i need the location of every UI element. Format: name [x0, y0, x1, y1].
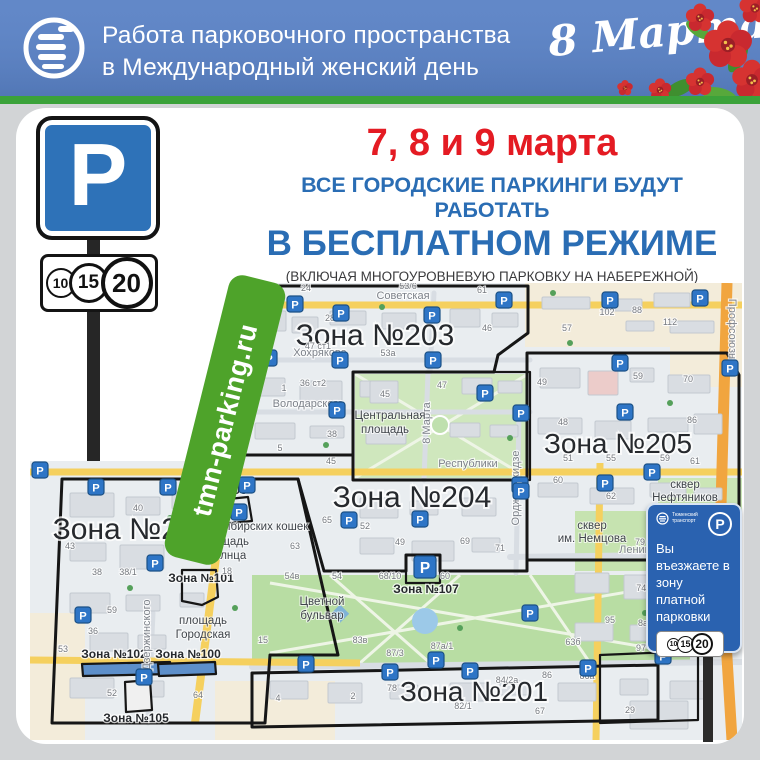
- entry-tariff-20: 20: [691, 633, 713, 655]
- parking-marker-icon: P: [88, 479, 104, 495]
- parking-marker-icon: P: [580, 660, 596, 676]
- house-number: 64: [193, 690, 203, 700]
- house-number: 15: [258, 635, 268, 645]
- entry-sign-pole: [703, 648, 713, 742]
- tree-icon: [567, 340, 573, 346]
- parking-marker-icon: P: [329, 402, 345, 418]
- house-number: 53/6: [399, 283, 417, 291]
- header-title-line2: в Международный женский день: [102, 52, 510, 84]
- tree-icon: [457, 625, 463, 631]
- place-label: Сибирских кошек: [216, 521, 309, 533]
- house-number: 5: [277, 443, 282, 453]
- building: [558, 683, 596, 701]
- parking-marker-icon: P: [231, 504, 247, 520]
- svg-text:P: P: [337, 308, 345, 320]
- announcement-dates: 7, 8 и 9 марта: [242, 122, 742, 165]
- svg-text:P: P: [517, 486, 525, 498]
- announcement-line1: ВСЕ ГОРОДСКИЕ ПАРКИНГИ БУДУТ РАБОТАТЬ: [242, 173, 742, 223]
- entry-sign-operator: Тюменский транспорт: [672, 512, 706, 524]
- place-label: им. Немцова: [558, 533, 627, 545]
- house-number: 24: [301, 283, 311, 293]
- house-number: 71: [495, 543, 505, 553]
- parking-marker-icon: P: [612, 355, 628, 371]
- house-number: 4: [275, 693, 280, 703]
- building: [255, 423, 295, 439]
- parking-marker-icon: P: [75, 607, 91, 623]
- transport-logo-icon: [20, 14, 88, 82]
- svg-text:P: P: [621, 407, 629, 419]
- house-number: 86: [542, 670, 552, 680]
- place-label: сквер: [670, 479, 700, 491]
- svg-text:P: P: [291, 299, 299, 311]
- announcement-line2: В БЕСПЛАТНОМ РЕЖИМЕ: [242, 224, 742, 264]
- house-number: 112: [663, 317, 677, 327]
- header: Работа парковочного пространства в Между…: [0, 0, 760, 96]
- house-number: 49: [395, 537, 405, 547]
- tree-icon: [323, 442, 329, 448]
- svg-text:P: P: [466, 666, 474, 678]
- parking-marker-icon: P: [412, 511, 428, 527]
- house-number: 54в: [285, 571, 300, 581]
- svg-text:P: P: [164, 482, 172, 494]
- house-number: 48: [558, 417, 568, 427]
- house-number: 88: [632, 305, 642, 315]
- building: [360, 538, 394, 554]
- house-number: 84/2а: [496, 675, 519, 685]
- header-title: Работа парковочного пространства в Между…: [102, 20, 510, 84]
- svg-text:P: P: [336, 355, 344, 367]
- street-label: Дзержинского: [141, 600, 153, 671]
- place-label: площадь: [179, 615, 227, 627]
- entry-sign-tariffs: 10 15 20: [656, 631, 724, 657]
- house-number: 53: [58, 644, 68, 654]
- house-number: 63б: [565, 637, 580, 647]
- street-label: Советская: [376, 290, 429, 302]
- district-area: [30, 613, 85, 740]
- parking-marker-icon: P: [722, 360, 738, 376]
- house-number: 53а: [380, 348, 395, 358]
- zone-label: Зона №107: [393, 582, 459, 596]
- house-number: 60: [440, 571, 450, 581]
- house-number: 59: [107, 605, 117, 615]
- house-number: 47: [437, 380, 447, 390]
- building: [538, 483, 578, 497]
- parking-sign: P: [36, 116, 160, 240]
- place-label: Центральная: [355, 410, 426, 422]
- place-label: бульвар: [300, 610, 343, 622]
- house-number: 55: [606, 453, 616, 463]
- svg-text:P: P: [92, 482, 100, 494]
- house-number: 45: [380, 389, 390, 399]
- house-number: 36: [88, 626, 98, 636]
- building: [620, 679, 648, 695]
- building: [542, 297, 590, 309]
- pond: [412, 608, 438, 634]
- square-fountain: [431, 416, 449, 434]
- tree-icon: [507, 435, 513, 441]
- house-number: 95: [605, 615, 615, 625]
- house-number: 43: [65, 541, 75, 551]
- house-number: 59: [633, 371, 643, 381]
- svg-text:P: P: [696, 293, 704, 305]
- paid-zone-entry-sign: Тюменский транспорт P Вы въезжаете в зон…: [646, 503, 742, 653]
- parking-marker-icon: P: [287, 296, 303, 312]
- house-number: 79: [635, 537, 645, 547]
- parking-marker-icon: P: [617, 404, 633, 420]
- house-number: 52: [107, 688, 117, 698]
- house-number: 2: [350, 691, 355, 701]
- zone-label: Зона №201: [400, 676, 548, 707]
- house-number: 29: [625, 705, 635, 715]
- parking-marker-icon: P: [136, 669, 152, 685]
- svg-text:P: P: [500, 295, 508, 307]
- building: [588, 371, 618, 395]
- house-number: 52: [360, 521, 370, 531]
- parking-marker-icon: P: [382, 664, 398, 680]
- svg-text:P: P: [584, 663, 592, 675]
- house-number: 54: [332, 571, 342, 581]
- house-number: 86: [687, 415, 697, 425]
- parking-marker-icon: P: [513, 405, 529, 421]
- tree-icon: [127, 585, 133, 591]
- building: [498, 381, 522, 393]
- parking-marker-icon: P: [522, 605, 538, 621]
- house-number: 59: [660, 453, 670, 463]
- tree-icon: [667, 400, 673, 406]
- parking-marker-icon: P: [414, 556, 436, 578]
- parking-marker-icon: P: [602, 292, 618, 308]
- building: [626, 321, 654, 331]
- house-number: 70: [683, 374, 693, 384]
- zone-label: Зона №100: [155, 647, 221, 661]
- parking-circle-icon: P: [708, 512, 732, 536]
- street-label: 8 Марта: [421, 401, 433, 443]
- map-canvas: Зона №203Зона №205Зона №204Зона №202Зона…: [30, 283, 742, 740]
- house-number: 49: [537, 377, 547, 387]
- house-number: 83в: [353, 635, 368, 645]
- house-number: 82/1: [454, 701, 472, 711]
- house-number: 45: [326, 456, 336, 466]
- svg-text:P: P: [151, 558, 159, 570]
- parking-marker-icon: P: [425, 352, 441, 368]
- svg-text:P: P: [416, 514, 424, 526]
- house-number: 36 ст2: [300, 378, 326, 388]
- place-label: сквер: [577, 520, 607, 532]
- parking-marker-icon: P: [477, 385, 493, 401]
- house-number: 87а/1: [431, 641, 454, 651]
- parking-marker-icon: P: [644, 464, 660, 480]
- parking-marker-icon: P: [332, 352, 348, 368]
- transport-logo-small-icon: [656, 512, 669, 525]
- svg-text:P: P: [345, 515, 353, 527]
- house-number: 51: [563, 453, 573, 463]
- house-number: 97: [636, 643, 646, 653]
- svg-text:P: P: [726, 363, 734, 375]
- parking-marker-icon: P: [462, 663, 478, 679]
- house-number: 47 ст1: [305, 341, 331, 351]
- parking-marker-icon: P: [160, 479, 176, 495]
- house-number: 38: [92, 567, 102, 577]
- zone-label: Зона №102: [81, 647, 147, 661]
- building: [575, 623, 613, 641]
- svg-text:P: P: [243, 480, 251, 492]
- building: [654, 293, 690, 307]
- parking-marker-icon: P: [428, 652, 444, 668]
- parking-marker-icon: P: [513, 483, 529, 499]
- house-number: 78: [387, 683, 397, 693]
- house-number: 63: [290, 541, 300, 551]
- house-number: 18: [222, 566, 232, 576]
- house-number: 60: [553, 475, 563, 485]
- svg-text:P: P: [235, 507, 243, 519]
- svg-text:P: P: [606, 295, 614, 307]
- svg-text:P: P: [517, 408, 525, 420]
- parking-marker-icon: P: [496, 292, 512, 308]
- map-layer: Зона №203Зона №205Зона №204Зона №202Зона…: [30, 283, 742, 740]
- house-number: 57: [562, 323, 572, 333]
- building: [490, 425, 518, 437]
- house-number: 61: [477, 285, 487, 295]
- tree-icon: [550, 290, 556, 296]
- house-number: 46: [482, 323, 492, 333]
- zone-outline: [158, 662, 216, 676]
- parking-marker-icon: P: [424, 307, 440, 323]
- house-number: 87/3: [386, 648, 404, 658]
- green-divider: [0, 96, 760, 104]
- building: [450, 423, 480, 437]
- entry-sign-header: Тюменский транспорт P: [656, 512, 732, 536]
- street-label: Республики: [438, 458, 497, 470]
- parking-marker-icon: P: [239, 477, 255, 493]
- place-label: Цветной: [300, 596, 345, 608]
- svg-text:P: P: [648, 467, 656, 479]
- svg-text:P: P: [428, 310, 436, 322]
- parking-marker-icon: P: [597, 475, 613, 491]
- tree-icon: [232, 605, 238, 611]
- svg-text:P: P: [481, 388, 489, 400]
- building: [450, 309, 480, 327]
- announcement: 7, 8 и 9 марта ВСЕ ГОРОДСКИЕ ПАРКИНГИ БУ…: [242, 122, 742, 284]
- svg-text:P: P: [601, 478, 609, 490]
- house-number: 38/1: [119, 567, 137, 577]
- house-number: 62: [606, 491, 616, 501]
- header-title-line1: Работа парковочного пространства: [102, 20, 510, 52]
- svg-text:P: P: [429, 355, 437, 367]
- place-label: Городская: [176, 629, 231, 641]
- svg-text:P: P: [333, 405, 341, 417]
- parking-marker-icon: P: [692, 290, 708, 306]
- house-number: 68/10: [379, 571, 402, 581]
- building: [575, 573, 609, 593]
- svg-text:P: P: [526, 608, 534, 620]
- announcement-note: (ВКЛЮЧАЯ МНОГОУРОВНЕВУЮ ПАРКОВКУ НА НАБЕ…: [242, 269, 742, 284]
- svg-text:P: P: [140, 672, 148, 684]
- svg-text:P: P: [79, 610, 87, 622]
- building: [328, 683, 362, 703]
- svg-text:P: P: [386, 667, 394, 679]
- parking-marker-icon: P: [298, 656, 314, 672]
- content-card: P 10 15 20 7, 8 и 9 марта ВСЕ ГОРОДСКИЕ …: [16, 108, 744, 744]
- place-label: площадь: [361, 424, 409, 436]
- house-number: 61: [690, 456, 700, 466]
- poster: { "header": { "title_line1": "Работа пар…: [0, 0, 760, 760]
- zone-label: Зона №105: [103, 711, 169, 725]
- building: [492, 313, 518, 327]
- district-area: [525, 283, 742, 347]
- parking-marker-icon: P: [32, 462, 48, 478]
- building: [694, 414, 722, 434]
- parking-marker-icon: P: [333, 305, 349, 321]
- parking-marker-icon: P: [147, 555, 163, 571]
- house-number: 1: [281, 383, 286, 393]
- house-number: 67: [535, 706, 545, 716]
- parking-zones-map: Зона №203Зона №205Зона №204Зона №202Зона…: [30, 283, 742, 740]
- house-number: 65: [322, 515, 332, 525]
- parking-marker-icon: P: [341, 512, 357, 528]
- svg-text:P: P: [36, 465, 44, 477]
- svg-text:P: P: [616, 358, 624, 370]
- zone-label: Зона №204: [333, 481, 492, 514]
- svg-text:P: P: [432, 655, 440, 667]
- house-number: 40: [133, 503, 143, 513]
- svg-text:P: P: [420, 560, 430, 577]
- entry-sign-text: Вы въезжаете в зону платной парковки: [656, 541, 732, 625]
- house-number: 69: [460, 536, 470, 546]
- svg-text:P: P: [302, 659, 310, 671]
- flowers-decoration: [530, 0, 760, 104]
- tree-icon: [379, 304, 385, 310]
- house-number: 38: [327, 429, 337, 439]
